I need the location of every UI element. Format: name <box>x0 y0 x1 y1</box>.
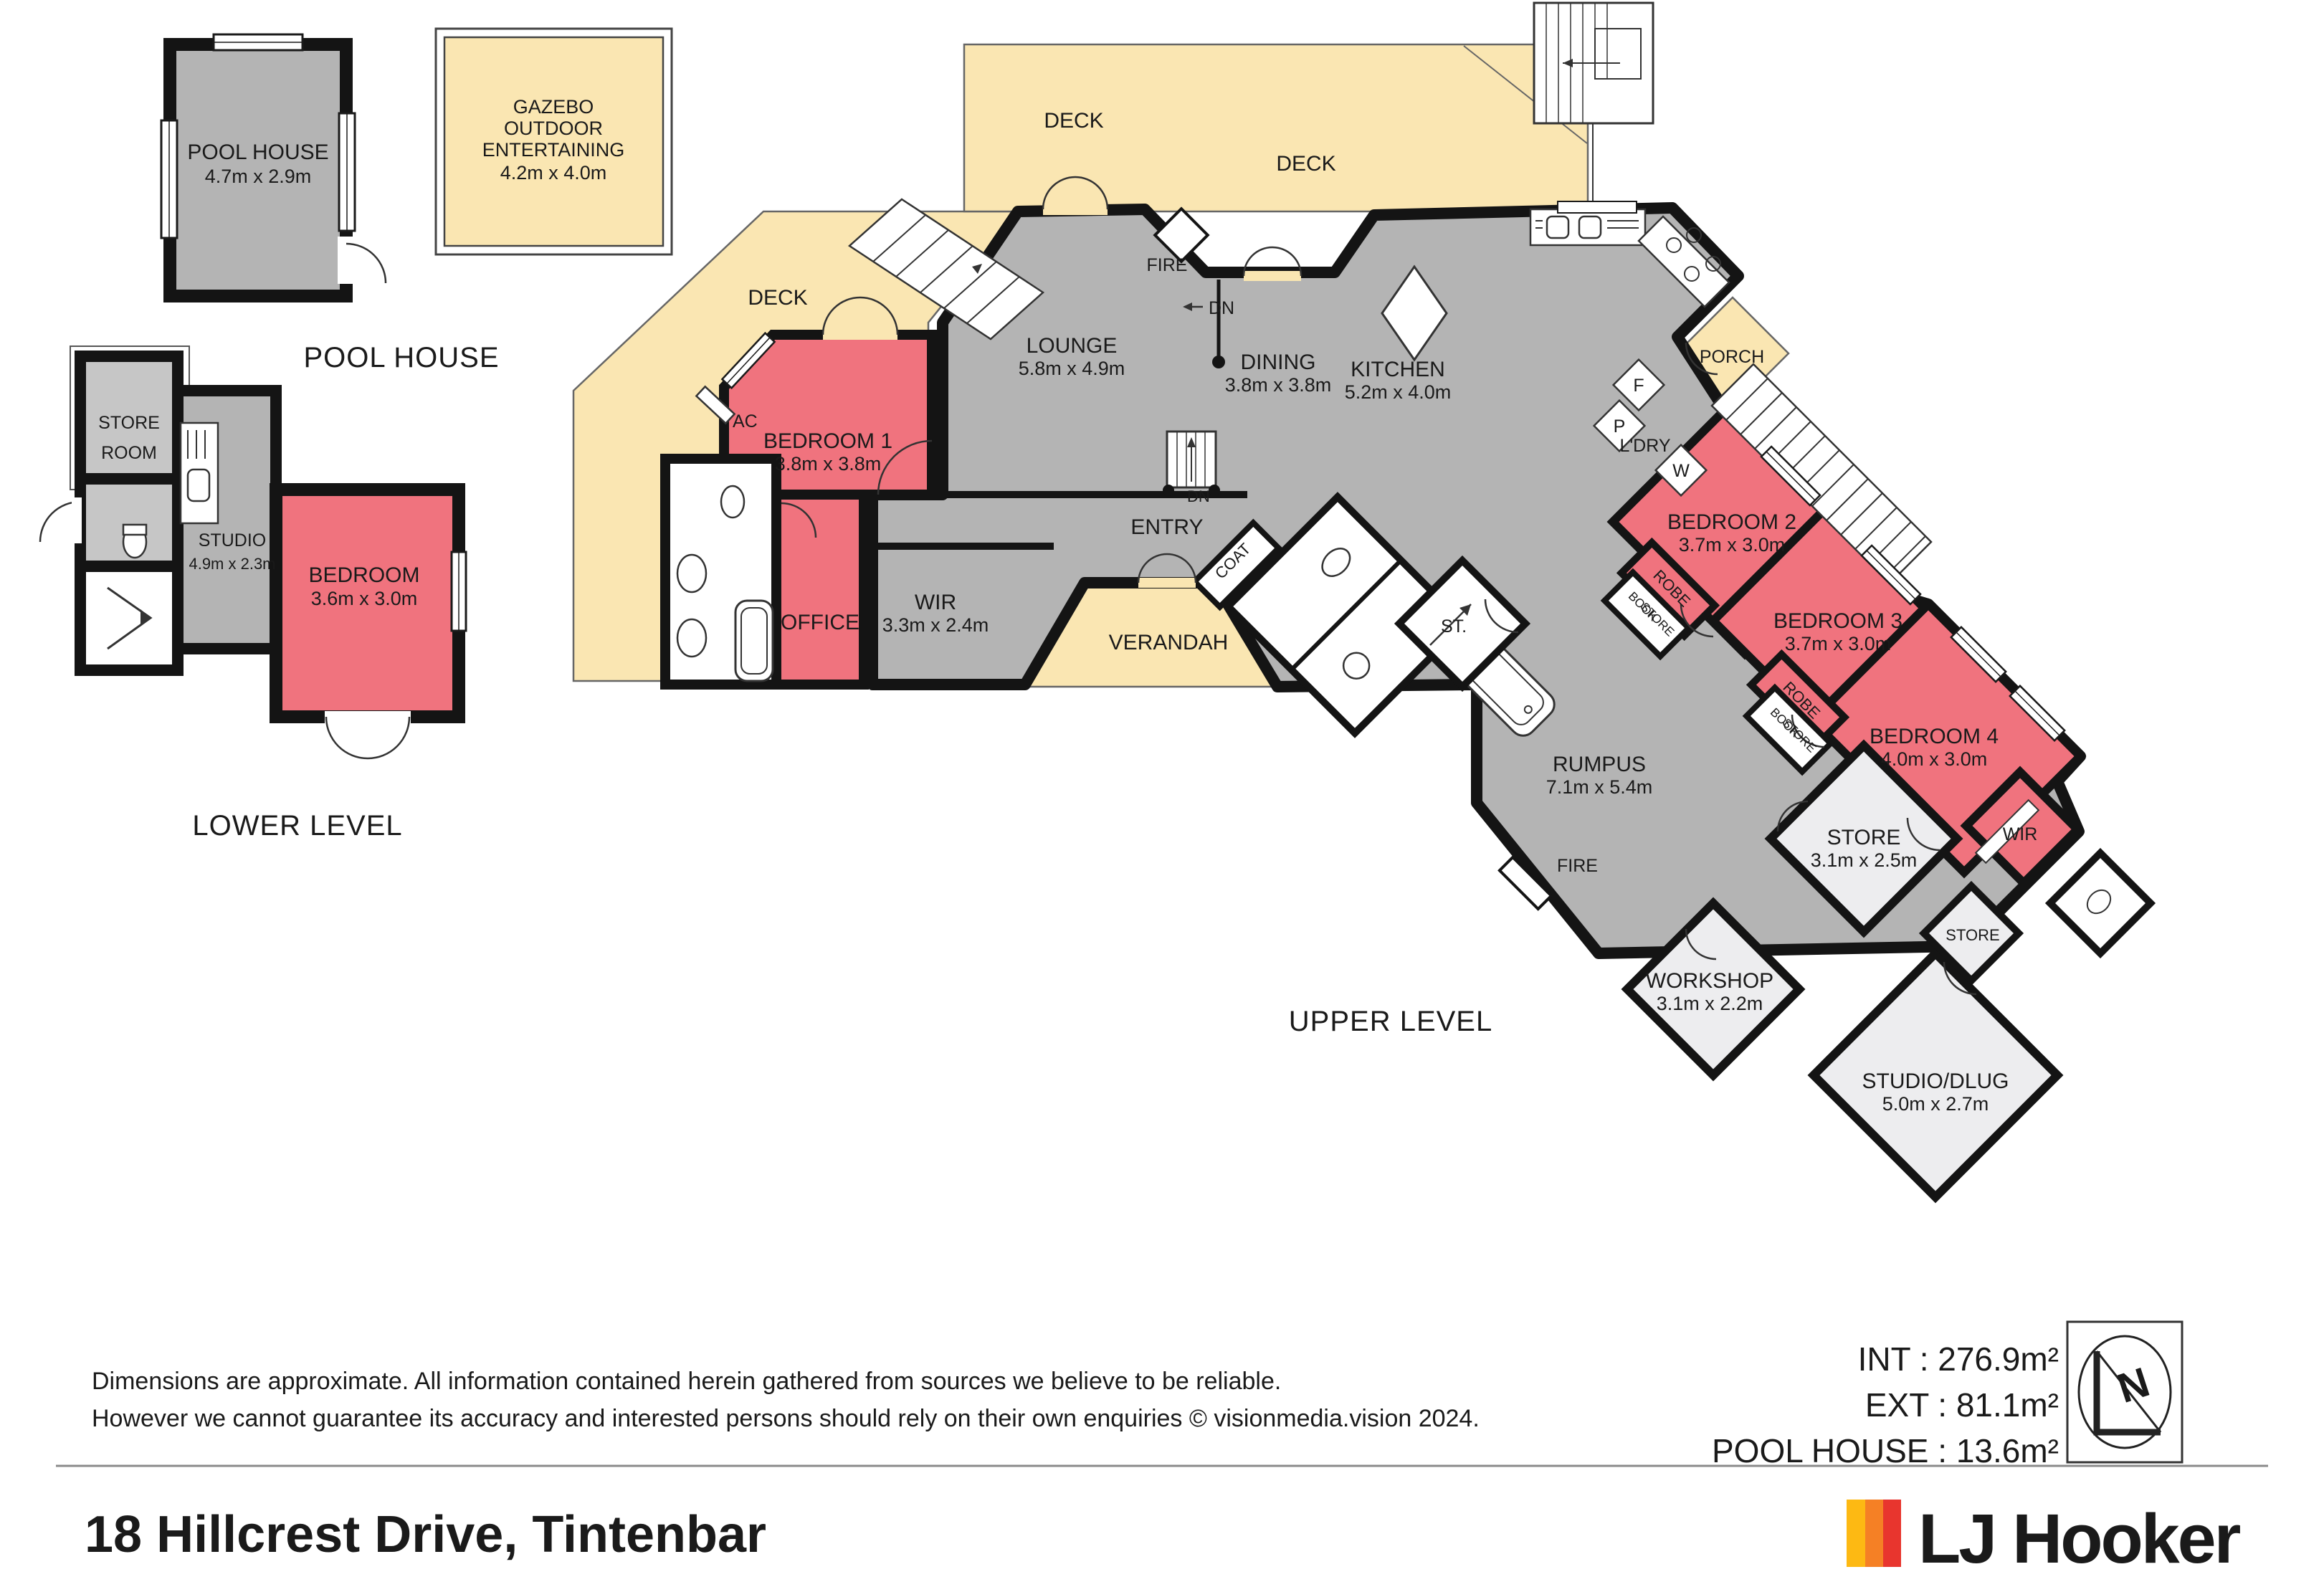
store-room-line1: STORE <box>98 413 160 433</box>
area-pool-house: POOL HOUSE : 13.6m² <box>1712 1432 2059 1469</box>
deck-left-label: DECK <box>748 286 807 310</box>
pantry-label: P <box>1614 416 1626 437</box>
dining-dims: 3.8m x 3.8m <box>1225 374 1332 396</box>
heading-upper-level: UPPER LEVEL <box>1289 1006 1492 1037</box>
dining-name: DINING <box>1241 351 1316 374</box>
pool-house-dims: 4.7m x 2.9m <box>205 166 312 187</box>
workshop-dims: 3.1m x 2.2m <box>1657 993 1763 1014</box>
studio-dlug-name: STUDIO/DLUG <box>1862 1069 2009 1093</box>
deck-top-label: DECK <box>1044 109 1103 133</box>
rumpus-name: RUMPUS <box>1553 753 1646 776</box>
brand-name: LJ Hooker <box>1918 1500 2241 1578</box>
bedroom4-dims: 4.0m x 3.0m <box>1881 748 1988 770</box>
bedroom2-name: BEDROOM 2 <box>1667 510 1796 534</box>
gazebo-line1: GAZEBO <box>513 96 594 118</box>
gazebo-line3: ENTERTAINING <box>482 139 625 161</box>
gazebo-dims: 4.2m x 4.0m <box>500 162 607 184</box>
fire-label: FIRE <box>1147 255 1188 275</box>
deck-right-label: DECK <box>1276 152 1335 176</box>
pool-house-name: POOL HOUSE <box>187 140 328 164</box>
disclaimer-line2: However we cannot guarantee its accuracy… <box>92 1405 1480 1432</box>
wir-main-dims: 3.3m x 2.4m <box>882 614 989 636</box>
area-ext: EXT : 81.1m² <box>1865 1386 2059 1424</box>
floorplan-page: POOL HOUSE 4.7m x 2.9m GAZEBO OUTDOOR EN… <box>0 0 2324 1587</box>
lj-hooker-logo: LJ Hooker <box>1847 1500 2241 1578</box>
area-int: INT : 276.9m² <box>1858 1340 2059 1378</box>
north-compass: N <box>2067 1322 2182 1462</box>
bedroom-lower-dims: 3.6m x 3.0m <box>311 588 418 609</box>
bedroom-lower-name: BEDROOM <box>308 563 419 587</box>
dn-label-entry: DN <box>1187 487 1210 505</box>
bedroom3-name: BEDROOM 3 <box>1773 609 1902 633</box>
heading-pool-house: POOL HOUSE <box>303 342 499 373</box>
bedroom1-name: BEDROOM 1 <box>763 429 892 453</box>
bedroom4-name: BEDROOM 4 <box>1870 725 1999 748</box>
fridge-label: F <box>1633 376 1644 396</box>
ldry-label: L'DRY <box>1619 436 1670 456</box>
address-title: 18 Hillcrest Drive, Tintenbar <box>85 1506 766 1563</box>
office-label: OFFICE <box>781 611 859 634</box>
studio-name: STUDIO <box>199 530 266 551</box>
office-room <box>776 495 864 685</box>
fire-rumpus-label: FIRE <box>1557 856 1598 876</box>
bedroom1-dims: 3.8m x 3.8m <box>775 453 882 475</box>
floorplan-canvas: POOL HOUSE 4.7m x 2.9m GAZEBO OUTDOOR EN… <box>0 0 2324 1587</box>
workshop-name: WORKSHOP <box>1646 969 1773 993</box>
lounge-dims: 5.8m x 4.9m <box>1019 358 1125 379</box>
heading-lower-level: LOWER LEVEL <box>192 810 402 842</box>
rumpus-dims: 7.1m x 5.4m <box>1546 776 1653 798</box>
store-small-label: STORE <box>1946 926 1999 944</box>
gazebo-line2: OUTDOOR <box>504 118 603 139</box>
porch-label: PORCH <box>1700 347 1764 367</box>
wir-main-name: WIR <box>915 591 956 614</box>
verandah-label: VERANDAH <box>1109 631 1229 654</box>
wir-right-label: WIR <box>2003 824 2038 844</box>
lounge-name: LOUNGE <box>1027 334 1118 358</box>
kitchen-dims: 5.2m x 4.0m <box>1345 381 1452 403</box>
store-big-name: STORE <box>1827 826 1901 849</box>
kitchen-name: KITCHEN <box>1351 358 1445 381</box>
bedroom3-dims: 3.7m x 3.0m <box>1785 633 1892 654</box>
studio-dlug-dims: 5.0m x 2.7m <box>1882 1093 1989 1115</box>
store-big-dims: 3.1m x 2.5m <box>1811 849 1918 871</box>
footer: Dimensions are approximate. All informat… <box>56 1322 2268 1578</box>
studio-dims: 4.9m x 2.3m <box>189 555 275 573</box>
entry-label: ENTRY <box>1130 515 1203 539</box>
ac-label: AC <box>733 411 758 432</box>
bedroom2-dims: 3.7m x 3.0m <box>1679 534 1786 556</box>
dn-label-top: DN <box>1209 298 1234 318</box>
disclaimer-line1: Dimensions are approximate. All informat… <box>92 1368 1281 1395</box>
lower-level-building <box>40 346 466 758</box>
store-room-line2: ROOM <box>101 443 157 463</box>
st-label: ST. <box>1441 616 1467 637</box>
washer-label: W <box>1672 461 1690 481</box>
